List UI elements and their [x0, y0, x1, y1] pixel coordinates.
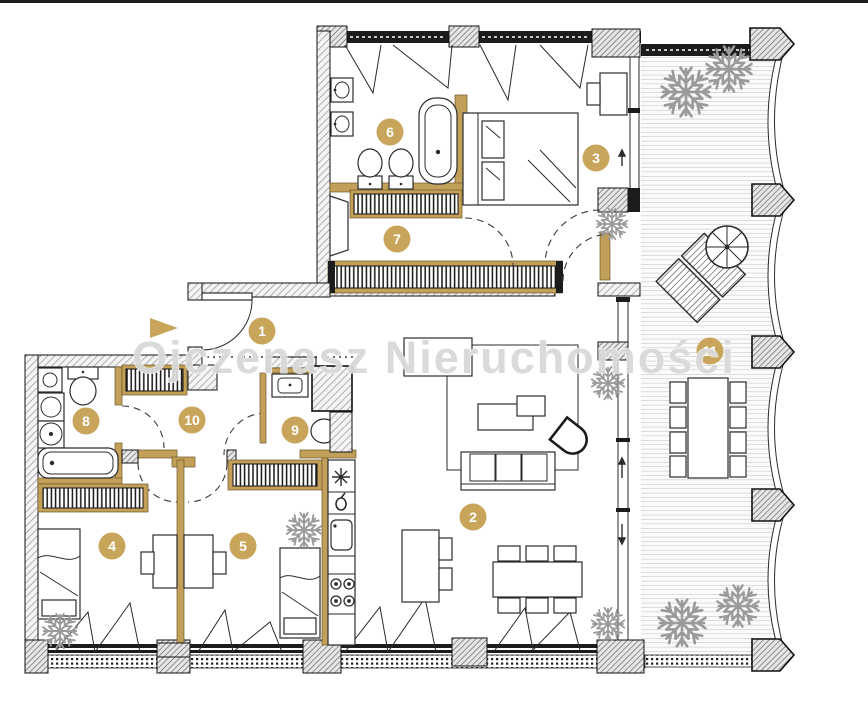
window-curtains-top [345, 45, 588, 100]
door-swing [465, 218, 513, 266]
dining-set [493, 546, 582, 613]
image-top-edge [0, 0, 868, 3]
pillow [482, 121, 504, 158]
room-4-bed [38, 529, 80, 619]
room-marker-label: 6 [386, 124, 394, 140]
pillow [482, 162, 504, 200]
armchair [550, 418, 592, 460]
room-marker-label: 10 [184, 412, 200, 428]
sink-icon [331, 112, 353, 136]
bed [463, 113, 578, 205]
toilet-icon [389, 149, 413, 189]
desk [600, 73, 627, 115]
room-4-desk [153, 535, 177, 588]
vanity-sink-icon [38, 393, 64, 421]
chair [213, 552, 226, 574]
room-5-desk [184, 535, 213, 588]
floor-plan-image: 1234567891011 Ojczenasz Nieruchomości [0, 0, 868, 703]
duct [330, 412, 352, 452]
toilet-icon [358, 149, 382, 189]
room-marker-label: 7 [393, 231, 401, 247]
door-swing [545, 210, 600, 265]
floor-plan: 1234567891011 Ojczenasz Nieruchomości [0, 0, 868, 703]
room-marker-label: 8 [82, 413, 90, 429]
wardrobe-door [330, 196, 348, 256]
door-swing [188, 463, 227, 502]
sofa [461, 452, 555, 490]
outdoor-dining-set [670, 378, 746, 478]
entrance-door-leaf [202, 293, 252, 300]
kitchen [322, 458, 355, 645]
kitchen-island [402, 530, 452, 602]
washing-machine-icon [38, 421, 64, 448]
partition-wall [177, 460, 184, 645]
door-swing [122, 406, 164, 448]
room-marker-label: 9 [291, 422, 299, 438]
room-marker-label: 4 [108, 538, 116, 554]
toilet-icon [68, 367, 98, 405]
side-table [517, 396, 545, 416]
sink-icon [331, 78, 353, 102]
chair [587, 83, 600, 105]
kitchen-sink-icon [331, 520, 352, 550]
room-5-bed [280, 548, 320, 638]
room-marker-label: 2 [469, 509, 477, 525]
room-marker-label: 3 [592, 150, 600, 166]
watermark: Ojczenasz Nieruchomości [132, 332, 736, 383]
chair [141, 552, 154, 574]
corner-sink-icon [38, 368, 62, 392]
room-marker-label: 5 [239, 538, 247, 554]
umbrella-icon [706, 226, 748, 268]
bathtub-icon [419, 98, 457, 184]
bathtub-icon [38, 448, 118, 478]
